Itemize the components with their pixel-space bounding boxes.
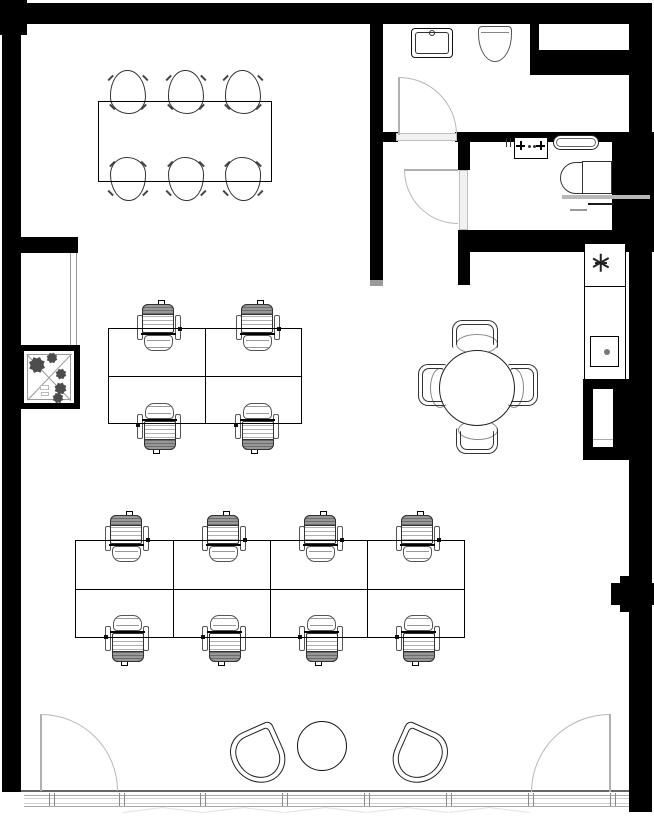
storefront-mullion <box>282 793 288 806</box>
storefront-glazing-line <box>24 798 629 799</box>
storefront-mullion <box>528 793 534 806</box>
conference-table <box>98 101 272 182</box>
desk-divider <box>76 589 464 590</box>
storefront-glazing-line <box>24 803 629 804</box>
chair-tick <box>200 190 206 196</box>
storefront-mullion <box>200 793 206 806</box>
chair-backrest-top <box>304 515 336 526</box>
chair-backrest-top <box>242 439 274 450</box>
chair-backrest-top <box>112 651 144 662</box>
desk-divider <box>109 376 301 377</box>
storefront-mullion <box>119 793 125 806</box>
chair-backrest-top <box>403 651 435 662</box>
chair-backrest-top <box>144 439 176 450</box>
storefront-mullion <box>610 793 616 806</box>
floor-plan-canvas <box>0 0 654 816</box>
storefront-mullion <box>446 793 452 806</box>
chair-backrest-top <box>207 515 239 526</box>
storefront-mullion <box>364 793 370 806</box>
chair-tick <box>107 190 113 196</box>
chair-tick <box>257 75 263 81</box>
storefront-mullion <box>49 793 55 806</box>
chair-tick <box>142 75 148 81</box>
chair-tick <box>222 190 228 196</box>
chair-tick <box>200 75 206 81</box>
chair-backrest-top <box>142 304 174 315</box>
storefront-glazing-line <box>24 795 629 796</box>
chair-tick <box>142 190 148 196</box>
round-meeting-table <box>439 350 515 426</box>
meeting-chair <box>508 364 538 406</box>
chair-backrest-top <box>110 515 142 526</box>
meeting-chair <box>418 364 446 406</box>
meeting-chair <box>452 320 498 348</box>
chair-tick <box>257 190 263 196</box>
chair-backrest-top <box>209 651 241 662</box>
desk-cluster-quad <box>108 328 302 424</box>
coffee-table <box>297 721 347 771</box>
chair-backrest-top <box>241 304 273 315</box>
desk-cluster-eight <box>75 540 465 638</box>
chair-backrest-top <box>306 651 338 662</box>
chair-backrest-top <box>401 515 433 526</box>
meeting-chair <box>456 428 498 454</box>
chair-tick <box>165 190 171 196</box>
